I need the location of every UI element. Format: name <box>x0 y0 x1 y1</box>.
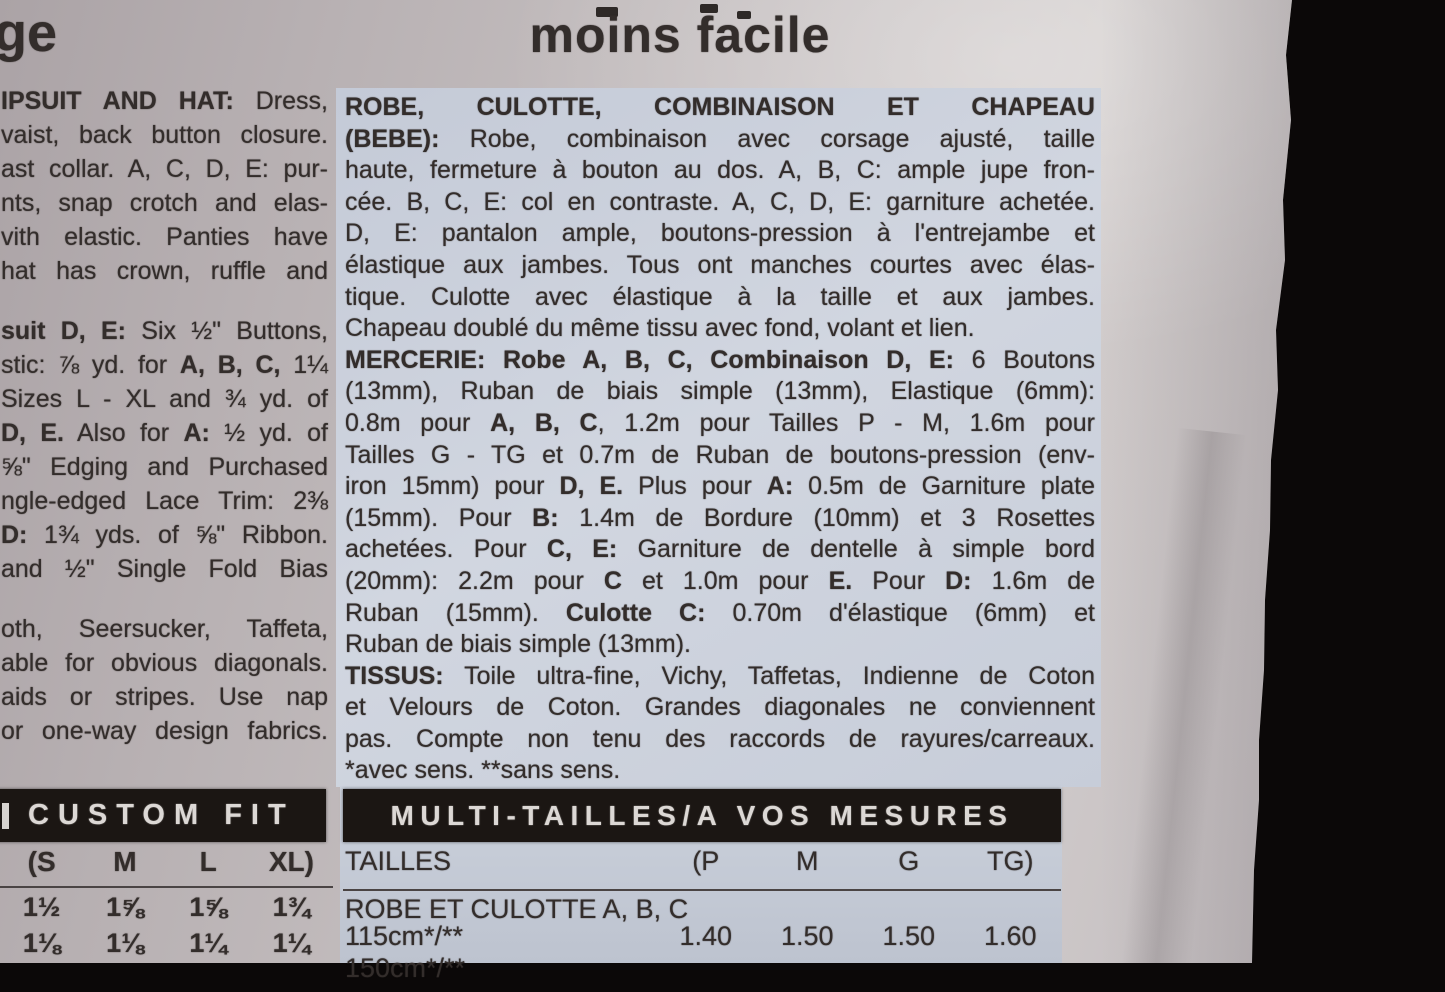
partial-heading-left: ge <box>0 2 57 64</box>
table-cell: 1¼ <box>167 928 250 964</box>
text-segment: Ruban (15mm). <box>345 599 566 627</box>
table-row: 1⅛1⅛1¼1¼ <box>0 928 333 964</box>
page-title: moins facile <box>430 6 930 64</box>
text-segment: 1.6m de <box>972 567 1096 595</box>
french-paragraph-mercerie: MERCERIE: Robe A, B, C, Combinaison D, E… <box>345 345 1095 661</box>
text-segment: Toile ultra-fine, Vichy, Taffetas, Indie… <box>444 662 1095 690</box>
table-cell: TG) <box>960 846 1062 877</box>
text-segment: hat has crown, ruffle and <box>1 257 328 285</box>
text-line: tique. Culotte avec élastique à la taill… <box>345 282 1095 314</box>
text-segment: iron 15mm) pour <box>345 472 560 500</box>
multi-size-size-header-row: TAILLES (PMGTG) <box>345 846 1061 880</box>
text-line: or one-way design fabrics. <box>1 714 328 748</box>
text-segment: Six ½" Buttons, <box>126 317 328 345</box>
text-line: ROBE, CULOTTE, COMBINAISON ET CHAPEAU <box>345 92 1095 124</box>
text-segment: or one-way design fabrics. <box>1 717 328 745</box>
table-cell: 1⅝ <box>167 892 250 928</box>
text-line: TISSUS: Toile ultra-fine, Vichy, Taffeta… <box>345 661 1095 693</box>
table-cell: G <box>858 846 960 877</box>
text-line: aids or stripes. Use nap <box>1 680 328 714</box>
bold-text-segment: suit D, E: <box>1 317 126 345</box>
text-line: Ruban de biais simple (13mm). <box>345 629 1095 661</box>
text-line: (20mm): 2.2m pour C et 1.0m pour E. Pour… <box>345 566 1095 598</box>
text-line: able for obvious diagonals. <box>1 646 328 680</box>
row-label: 115cm*/** <box>345 921 463 952</box>
text-line: achetées. Pour C, E: Garniture de dentel… <box>345 534 1095 566</box>
text-line: and ½" Single Fold Bias <box>1 552 328 586</box>
text-line: cée. B, C, E: col en contraste. A, C, D,… <box>345 187 1095 219</box>
text-line: IPSUIT AND HAT: Dress, <box>1 84 328 118</box>
text-line: MERCERIE: Robe A, B, C, Combinaison D, E… <box>345 345 1095 377</box>
text-line: oth, Seersucker, Taffeta, <box>1 612 328 646</box>
text-segment: vaist, back button closure. <box>1 121 328 149</box>
sizes-column-label: TAILLES <box>345 846 451 877</box>
table-cell: M <box>83 846 166 878</box>
text-segment: Ruban de biais simple (13mm). <box>345 630 691 658</box>
multi-size-size-headers: (PMGTG) <box>655 846 1061 877</box>
text-line: Ruban (15mm). Culotte C: 0.70m d'élastiq… <box>345 598 1095 630</box>
text-segment: et Velours de Coton. Grandes diagonales … <box>345 693 1095 721</box>
text-line: ast collar. A, C, D, E: pur- <box>1 152 328 186</box>
text-line: ngle-edged Lace Trim: 2⅜ <box>1 484 328 518</box>
text-segment: Dress, <box>234 87 328 115</box>
text-line: ⅝" Edging and Purchased <box>1 450 328 484</box>
text-segment: tique. Culotte avec élastique à la taill… <box>345 283 1095 311</box>
bold-text-segment: E. <box>829 567 853 595</box>
french-paragraph-tissus: TISSUS: Toile ultra-fine, Vichy, Taffeta… <box>345 661 1095 787</box>
bold-text-segment: A, B, C <box>490 409 598 437</box>
bold-text-segment: (BEBE): <box>345 125 439 153</box>
text-segment: ast collar. A, C, D, E: pur- <box>1 155 328 183</box>
cut-off-letter-fragment <box>2 803 9 829</box>
text-line: pas. Compte non tenu des raccords de ray… <box>345 724 1095 756</box>
bold-text-segment: A: <box>767 472 793 500</box>
text-segment: able for obvious diagonals. <box>1 649 328 677</box>
text-segment: (20mm): 2.2m pour <box>345 567 604 595</box>
text-segment: cée. B, C, E: col en contraste. A, C, D,… <box>345 188 1095 216</box>
left-english-text-column: IPSUIT AND HAT: Dress,vaist, back button… <box>1 84 328 748</box>
bold-text-segment: D, E. <box>1 419 64 447</box>
table-cell: (S <box>0 846 83 878</box>
bold-text-segment: MERCERIE: Robe A, B, C, Combinaison D, E… <box>345 346 954 374</box>
bold-text-segment: IPSUIT AND HAT: <box>1 87 234 115</box>
text-segment: , 1.2m pour Tailles P - M, 1.6m pour <box>598 409 1095 437</box>
table-cell: 1⅛ <box>0 928 83 964</box>
french-text-column: ROBE, CULOTTE, COMBINAISON ET CHAPEAU(BE… <box>345 92 1095 787</box>
text-segment: stic: ⅞ yd. for <box>1 351 180 379</box>
text-segment: 1¼ <box>280 351 328 379</box>
bold-text-segment: ROBE, CULOTTE, COMBINAISON ET CHAPEAU <box>345 93 1095 121</box>
table-rule <box>343 889 1061 891</box>
table-cell: (P <box>655 846 757 877</box>
multi-size-title: MULTI-TAILLES/A VOS MESURES <box>391 800 1014 832</box>
english-paragraph-notions: suit D, E: Six ½" Buttons,stic: ⅞ yd. fo… <box>1 314 328 586</box>
text-line: vith elastic. Panties have <box>1 220 328 254</box>
text-line: et Velours de Coton. Grandes diagonales … <box>345 692 1095 724</box>
table-cell: M <box>757 846 859 877</box>
text-segment: 0.8m pour <box>345 409 490 437</box>
english-paragraph-fabrics: oth, Seersucker, Taffeta,able for obviou… <box>1 612 328 748</box>
text-line: (13mm), Ruban de biais simple (13mm), El… <box>345 376 1095 408</box>
text-segment: ½ yd. of <box>210 419 328 447</box>
text-segment: Also for <box>64 419 184 447</box>
paper-crease-shadow <box>1119 428 1247 992</box>
bold-text-segment: C <box>604 567 622 595</box>
text-line: élastique aux jambes. Tous ont manches c… <box>345 250 1095 282</box>
table-row: 115cm*/**1.401.501.501.60 <box>345 921 1061 953</box>
text-segment: oth, Seersucker, Taffeta, <box>1 615 328 643</box>
text-segment: nts, snap crotch and elas- <box>1 189 328 217</box>
photo-of-sewing-pattern-instructions: { "header": { "left_partial": "ge", "tit… <box>0 0 1445 963</box>
text-line: D, E: pantalon ample, boutons-pression à… <box>345 218 1095 250</box>
english-paragraph-description: IPSUIT AND HAT: Dress,vaist, back button… <box>1 84 328 288</box>
text-line: *avec sens. **sans sens. <box>345 755 1095 787</box>
text-segment: 1.4m de Bordure (10mm) et 3 Rosettes <box>559 504 1095 532</box>
text-segment: 0.70m d'élastique (6mm) et <box>705 599 1095 627</box>
row-label: 150cm*/** <box>345 953 465 984</box>
text-segment: Sizes L - XL and ¾ yd. of <box>1 385 328 413</box>
text-line: (15mm). Pour B: 1.4m de Bordure (10mm) e… <box>345 503 1095 535</box>
text-segment: D, E: pantalon ample, boutons-pression à… <box>345 219 1095 247</box>
text-segment: vith elastic. Panties have <box>1 223 328 251</box>
text-line: D, E. Also for A: ½ yd. of <box>1 416 328 450</box>
text-segment: 0.5m de Garniture plate <box>793 472 1095 500</box>
multi-size-table-rows: 115cm*/**1.401.501.501.60150cm*/** <box>345 921 1061 985</box>
custom-fit-title: CUSTOM FIT <box>28 799 295 832</box>
text-segment: 1¾ yds. of ⅝" Ribbon. <box>27 521 328 549</box>
text-line: iron 15mm) pour D, E. Plus pour A: 0.5m … <box>345 471 1095 503</box>
bold-text-segment: D: <box>1 521 27 549</box>
text-segment: élastique aux jambes. Tous ont manches c… <box>345 251 1095 279</box>
bold-text-segment: B: <box>532 504 558 532</box>
multi-size-table-header-bar: MULTI-TAILLES/A VOS MESURES <box>343 789 1061 842</box>
text-line: 0.8m pour A, B, C, 1.2m pour Tailles P -… <box>345 408 1095 440</box>
table-row: 150cm*/** <box>345 953 1061 985</box>
text-line: Chapeau doublé du même tissu avec fond, … <box>345 313 1095 345</box>
table-cell: 1⅝ <box>83 892 166 928</box>
bold-text-segment: D: <box>945 567 971 595</box>
text-segment: Pour <box>852 567 945 595</box>
text-line: (BEBE): Robe, combinaison avec corsage a… <box>345 124 1095 156</box>
table-cell: 1½ <box>0 892 83 928</box>
text-line: nts, snap crotch and elas- <box>1 186 328 220</box>
text-segment: Garniture de dentelle à simple bord <box>617 535 1095 563</box>
bold-text-segment: C, E: <box>547 535 617 563</box>
text-line: suit D, E: Six ½" Buttons, <box>1 314 328 348</box>
text-segment: ngle-edged Lace Trim: 2⅜ <box>1 487 328 515</box>
text-segment: 6 Boutons <box>954 346 1095 374</box>
text-line: stic: ⅞ yd. for A, B, C, 1¼ <box>1 348 328 382</box>
table-cell: L <box>167 846 250 878</box>
table-row: 1½1⅝1⅝1¾ <box>0 892 333 928</box>
table-cell: 1⅛ <box>83 928 166 964</box>
table-cell: 1.40 <box>655 921 757 952</box>
table-cell: 1¾ <box>250 892 333 928</box>
bold-text-segment: TISSUS: <box>345 662 444 690</box>
text-segment: Plus pour <box>623 472 767 500</box>
text-segment: aids or stripes. Use nap <box>1 683 328 711</box>
text-line: Tailles G - TG et 0.7m de Ruban de bouto… <box>345 440 1095 472</box>
text-line: haute, fermeture à bouton au dos. A, B, … <box>345 155 1095 187</box>
bold-text-segment: A, B, C, <box>180 351 281 379</box>
table-rule <box>0 886 333 888</box>
text-segment: pas. Compte non tenu des raccords de ray… <box>345 725 1095 753</box>
text-segment: ⅝" Edging and Purchased <box>1 453 328 481</box>
text-segment: *avec sens. **sans sens. <box>345 756 620 784</box>
bold-text-segment: A: <box>183 419 209 447</box>
table-cell: 1.50 <box>757 921 859 952</box>
text-line: Sizes L - XL and ¾ yd. of <box>1 382 328 416</box>
text-line: hat has crown, ruffle and <box>1 254 328 288</box>
custom-fit-size-header-row: (SMLXL) <box>0 846 333 878</box>
table-cell: XL) <box>250 846 333 878</box>
text-segment: Robe, combinaison avec corsage ajusté, t… <box>439 125 1095 153</box>
text-segment: Tailles G - TG et 0.7m de Ruban de bouto… <box>345 441 1095 469</box>
text-segment: haute, fermeture à bouton au dos. A, B, … <box>345 156 1095 184</box>
text-segment: Chapeau doublé du même tissu avec fond, … <box>345 314 975 342</box>
bold-text-segment: D, E. <box>560 472 624 500</box>
text-segment: et 1.0m pour <box>622 567 829 595</box>
custom-fit-table-header-bar: CUSTOM FIT <box>0 789 326 842</box>
bold-text-segment: Culotte C: <box>566 599 706 627</box>
table-cell: 1.60 <box>960 921 1062 952</box>
table-cell: 1.50 <box>858 921 960 952</box>
table-cell: 1¼ <box>250 928 333 964</box>
text-line: vaist, back button closure. <box>1 118 328 152</box>
text-segment: achetées. Pour <box>345 535 547 563</box>
row-values: 1.401.501.501.60 <box>655 921 1061 952</box>
text-segment: and ½" Single Fold Bias <box>1 555 328 583</box>
custom-fit-table-rows: 1½1⅝1⅝1¾1⅛1⅛1¼1¼ <box>0 892 333 964</box>
text-segment: (13mm), Ruban de biais simple (13mm), El… <box>345 377 1095 405</box>
text-line: D: 1¾ yds. of ⅝" Ribbon. <box>1 518 328 552</box>
text-segment: (15mm). Pour <box>345 504 532 532</box>
french-paragraph-description: ROBE, CULOTTE, COMBINAISON ET CHAPEAU(BE… <box>345 92 1095 345</box>
